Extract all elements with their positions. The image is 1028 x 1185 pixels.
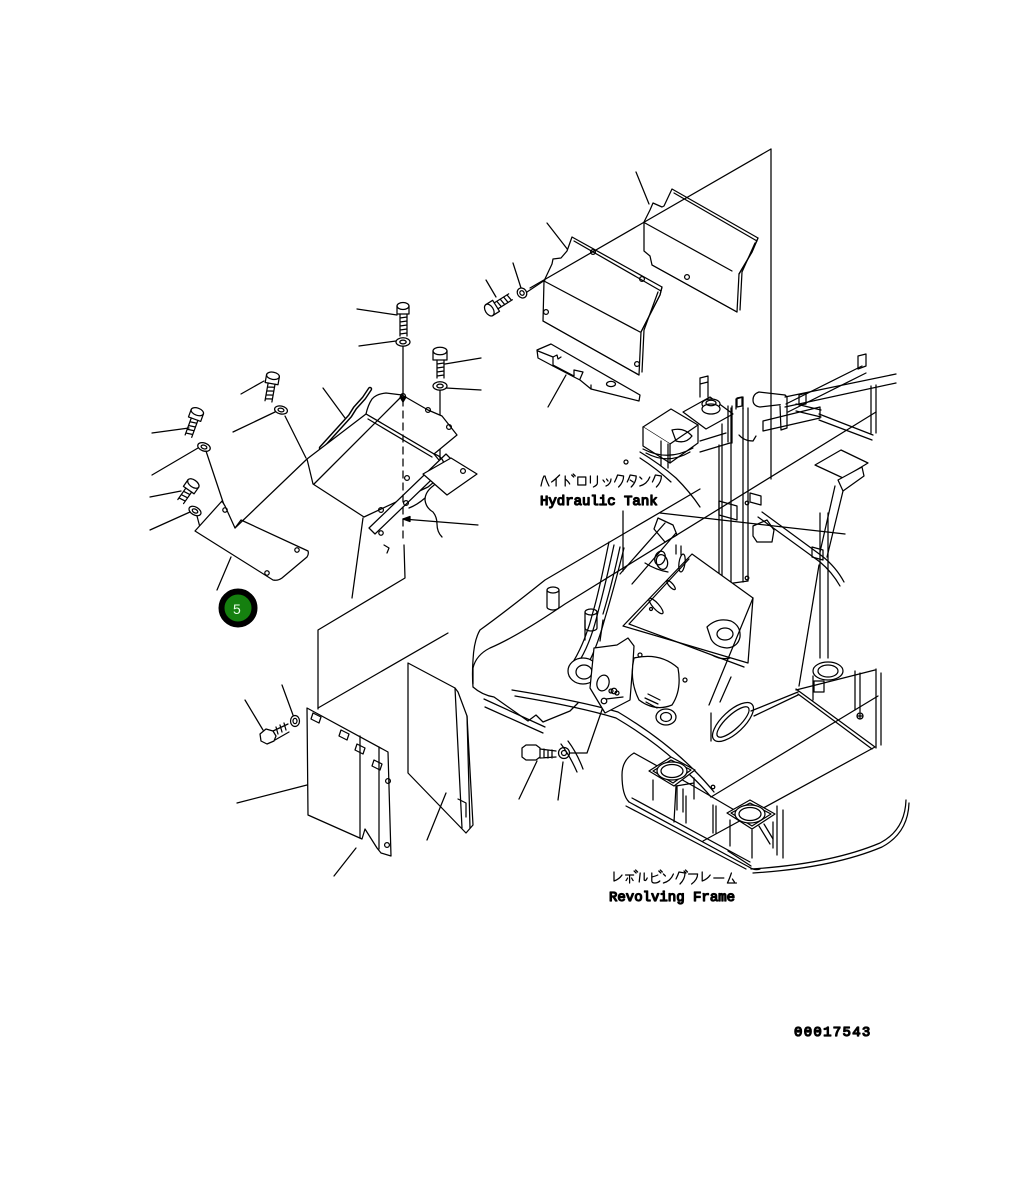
svg-text:00017543: 00017543: [794, 1025, 872, 1041]
svg-text:Hydraulic Tank: Hydraulic Tank: [540, 494, 658, 510]
svg-text:Revolving Frame: Revolving Frame: [609, 890, 735, 906]
svg-text:5: 5: [233, 601, 241, 617]
